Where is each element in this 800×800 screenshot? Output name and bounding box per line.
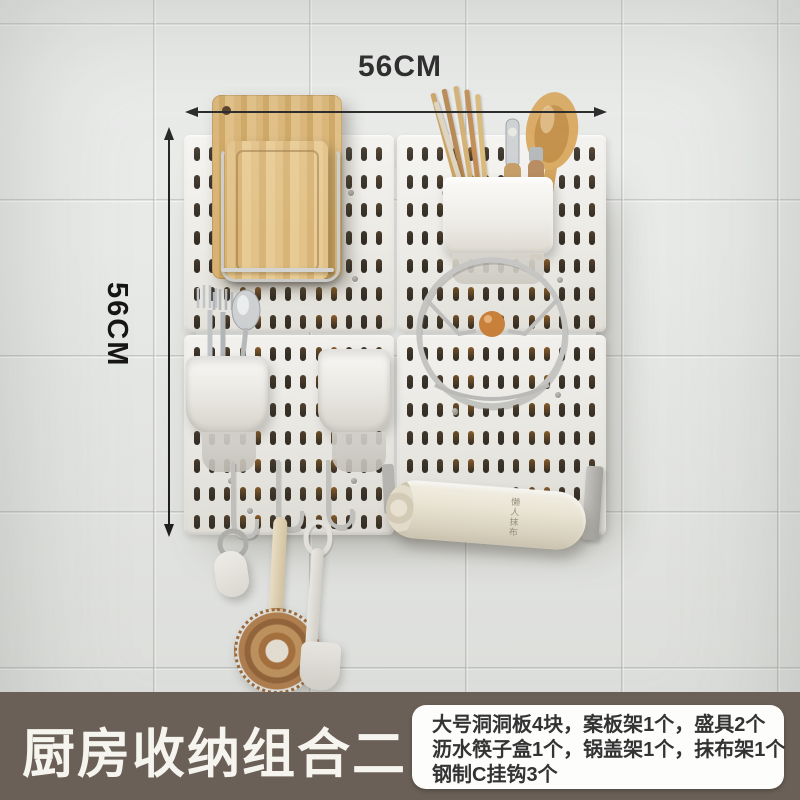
pegboard-slot bbox=[453, 459, 459, 473]
pegboard-slot bbox=[498, 431, 504, 445]
pegboard-slot bbox=[376, 147, 382, 161]
pegboard-slot bbox=[194, 175, 200, 189]
contents-info-box: 大号洞洞板4块，案板架1个，盛具2个 沥水筷子盒1个，锅盖架1个，抹布架1个 钢… bbox=[412, 705, 784, 789]
pegboard-slot bbox=[194, 259, 200, 273]
pegboard-slot bbox=[407, 231, 413, 245]
pegboard-slot bbox=[529, 431, 535, 445]
cutting-board-hole bbox=[222, 106, 231, 115]
pegboard-slot bbox=[285, 347, 291, 361]
pegboard-slot bbox=[574, 431, 580, 445]
pegboard-slot bbox=[589, 347, 595, 361]
pegboard-slot bbox=[300, 375, 306, 389]
pegboard-slot bbox=[346, 147, 352, 161]
info-line-2: 沥水筷子盒1个，锅盖架1个，抹布架1个 bbox=[432, 738, 784, 763]
pegboard-slot bbox=[453, 431, 459, 445]
pegboard-slot bbox=[194, 231, 200, 245]
pegboard-slot bbox=[285, 287, 291, 301]
pegboard-slot bbox=[483, 459, 489, 473]
pegboard-slot bbox=[559, 431, 565, 445]
pegboard-slot bbox=[361, 203, 367, 217]
pegboard-slot bbox=[270, 403, 276, 417]
pegboard-slot bbox=[346, 175, 352, 189]
pegboard-slot bbox=[513, 459, 519, 473]
pegboard-slot bbox=[407, 147, 413, 161]
pot-lid-holder bbox=[405, 245, 585, 425]
pegboard-slot bbox=[376, 259, 382, 273]
pegboard-slot bbox=[361, 147, 367, 161]
towel-roll-label: 懒人抹布 bbox=[506, 497, 522, 538]
pegboard-slot bbox=[300, 315, 306, 329]
pegboard-slot bbox=[422, 231, 428, 245]
pegboard-slot bbox=[574, 459, 580, 473]
pegboard-slot bbox=[529, 459, 535, 473]
pegboard-slot bbox=[346, 315, 352, 329]
pegboard-slot bbox=[285, 375, 291, 389]
wooden-ball-knob bbox=[479, 311, 505, 337]
utensil-cup-with-cutlery bbox=[186, 356, 268, 434]
pegboard-slot bbox=[513, 431, 519, 445]
pegboard-slot bbox=[376, 231, 382, 245]
pegboard-slot bbox=[589, 403, 595, 417]
pegboard-slot bbox=[376, 203, 382, 217]
pegboard-slot bbox=[346, 259, 352, 273]
pegboard-slot bbox=[316, 315, 322, 329]
pegboard-slot bbox=[376, 287, 382, 301]
pegboard-slot bbox=[422, 431, 428, 445]
pegboard-slot bbox=[589, 431, 595, 445]
pegboard-slot bbox=[437, 147, 443, 161]
pegboard-slot bbox=[468, 459, 474, 473]
product-photo: 懒人抹布 56CM 56CM 厨房收纳组合二 大号洞洞板4块， bbox=[0, 0, 800, 800]
panel-screw bbox=[352, 276, 358, 282]
pegboard-slot bbox=[559, 459, 565, 473]
pegboard-slot bbox=[589, 315, 595, 329]
pegboard-slot bbox=[285, 403, 291, 417]
pegboard-slot bbox=[422, 459, 428, 473]
pegboard-slot bbox=[437, 431, 443, 445]
pegboard-slot bbox=[498, 459, 504, 473]
pegboard-slot bbox=[361, 287, 367, 301]
pegboard-slot bbox=[407, 175, 413, 189]
pegboard-slot bbox=[483, 431, 489, 445]
pegboard-slot bbox=[346, 287, 352, 301]
pegboard-slot bbox=[194, 147, 200, 161]
pegboard-slot bbox=[544, 431, 550, 445]
chopstick-drain-box bbox=[443, 177, 553, 254]
pegboard-slot bbox=[376, 175, 382, 189]
info-line-3: 钢制C挂钩3个 bbox=[432, 763, 784, 788]
pegboard-slot bbox=[346, 231, 352, 245]
pegboard-slot bbox=[361, 259, 367, 273]
pegboard-slot bbox=[437, 459, 443, 473]
pegboard-slot bbox=[346, 203, 352, 217]
pegboard-slot bbox=[361, 231, 367, 245]
product-title: 厨房收纳组合二 bbox=[22, 712, 407, 788]
info-line-1: 大号洞洞板4块，案板架1个，盛具2个 bbox=[432, 713, 784, 738]
pegboard-slot bbox=[361, 175, 367, 189]
dish-brush-head bbox=[298, 641, 341, 692]
pegboard-slot bbox=[422, 175, 428, 189]
pegboard-slot bbox=[285, 315, 291, 329]
pegboard-slot bbox=[300, 287, 306, 301]
pegboard-slot bbox=[316, 287, 322, 301]
pegboard-slot bbox=[361, 315, 367, 329]
pegboard-slot bbox=[270, 375, 276, 389]
pegboard-slot bbox=[407, 203, 413, 217]
pegboard-slot bbox=[300, 403, 306, 417]
pegboard-slot bbox=[422, 203, 428, 217]
pegboard-slot bbox=[194, 203, 200, 217]
forks-and-spoon bbox=[186, 278, 278, 366]
pegboard-slot bbox=[300, 347, 306, 361]
pegboard-slot bbox=[331, 287, 337, 301]
pegboard-slot bbox=[589, 287, 595, 301]
pegboard-slot bbox=[468, 431, 474, 445]
pegboard-slot bbox=[422, 147, 428, 161]
pegboard-slot bbox=[376, 315, 382, 329]
width-dimension-label: 56CM bbox=[340, 50, 460, 84]
utensil-cup-empty bbox=[318, 349, 390, 434]
panel-screw bbox=[348, 190, 354, 196]
board-rack-wire bbox=[221, 149, 340, 282]
pegboard-slot bbox=[544, 459, 550, 473]
pegboard-slot bbox=[589, 375, 595, 389]
height-dimension-label: 56CM bbox=[100, 282, 133, 374]
board-rack-front-bar bbox=[221, 268, 334, 272]
pegboard-slot bbox=[331, 315, 337, 329]
